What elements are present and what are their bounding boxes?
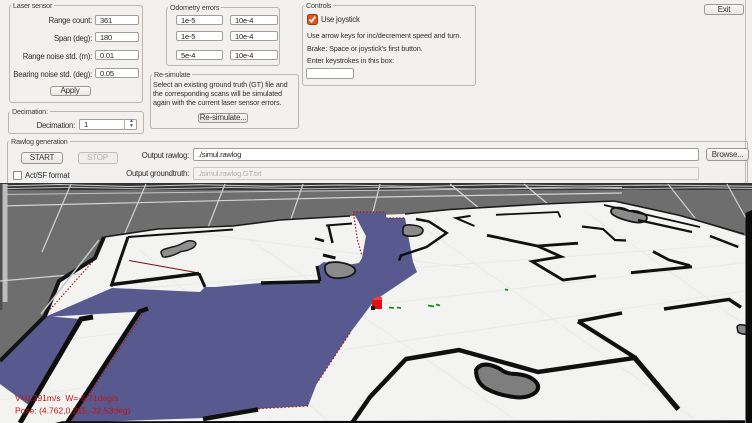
svg-text:Pose: (4.762,0.215,-32.53deg): Pose: (4.762,0.215,-32.53deg) (15, 406, 130, 416)
svg-text:V=0.291m/s W=-5.71deg/s: V=0.291m/s W=-5.71deg/s (15, 393, 118, 403)
